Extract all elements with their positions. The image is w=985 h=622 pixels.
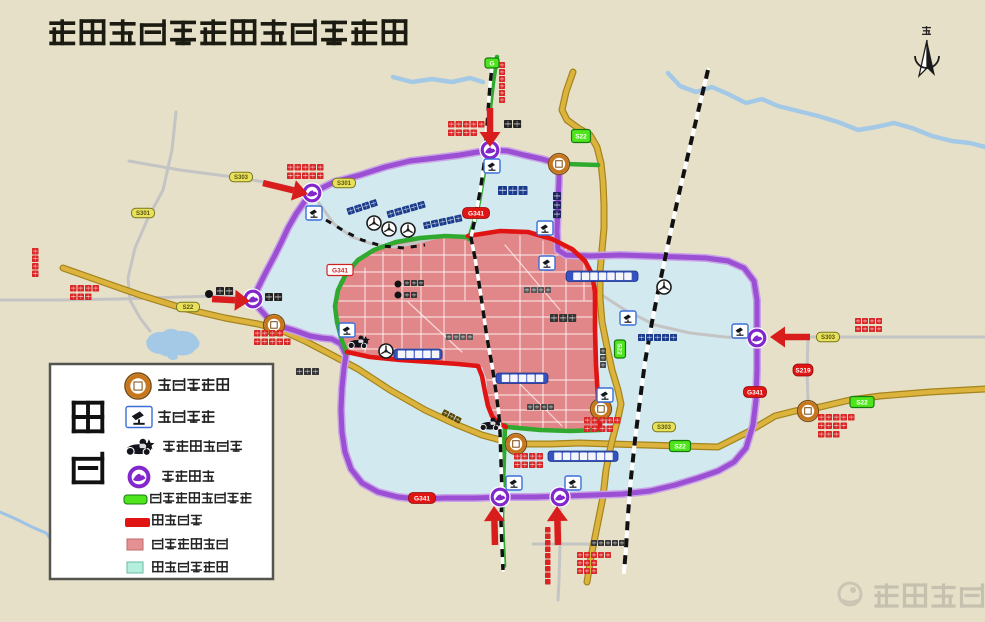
svg-text:G341: G341 (332, 267, 348, 274)
svg-text:S22: S22 (575, 133, 587, 140)
svg-text:G341: G341 (468, 210, 484, 217)
svg-text:S301: S301 (136, 211, 151, 217)
svg-text:S219: S219 (795, 367, 811, 374)
svg-text:S303: S303 (821, 335, 836, 341)
svg-text:G341: G341 (747, 389, 763, 396)
svg-text:S22: S22 (674, 443, 686, 450)
svg-text:S301: S301 (337, 181, 352, 187)
svg-text:G341: G341 (414, 495, 430, 502)
svg-text:G: G (489, 60, 494, 67)
svg-text:S303: S303 (234, 175, 249, 181)
svg-text:S22: S22 (856, 399, 868, 406)
svg-text:S303: S303 (657, 425, 672, 431)
svg-text:S22: S22 (183, 305, 194, 311)
svg-text:S22: S22 (616, 343, 623, 355)
